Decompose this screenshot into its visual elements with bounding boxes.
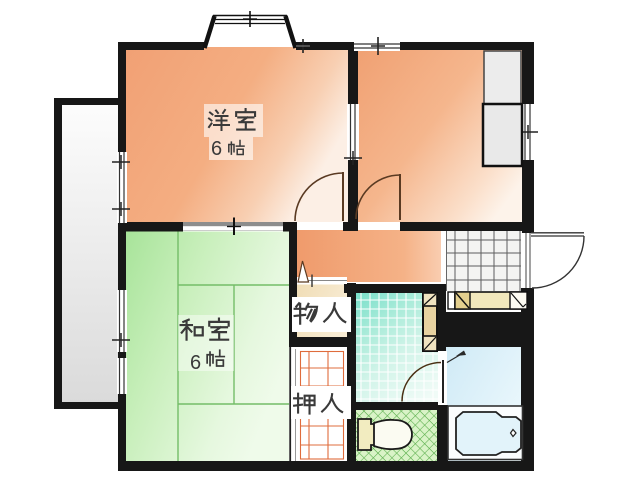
svg-text:6: 6	[211, 138, 222, 160]
svg-text:6: 6	[190, 352, 201, 374]
